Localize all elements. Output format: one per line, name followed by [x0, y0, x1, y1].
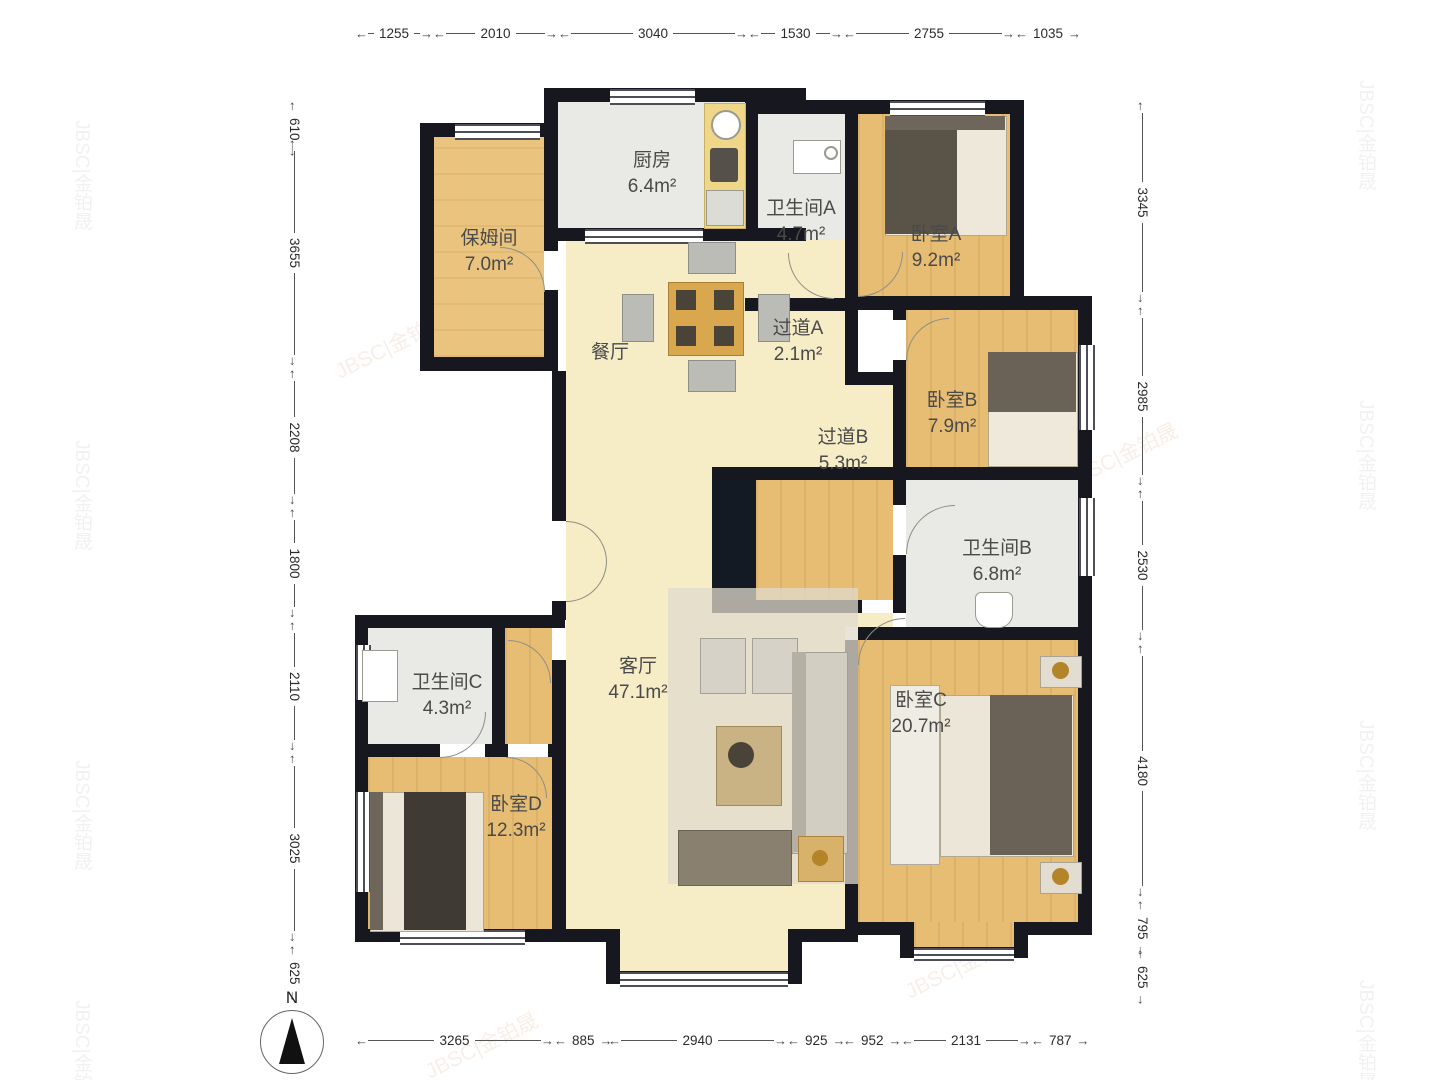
armchair — [700, 638, 746, 694]
dim-top-5: ←1035→ — [1015, 24, 1080, 42]
compass-north-label: N — [255, 988, 329, 1008]
room-label-bathB: 卫生间B6.8m² — [962, 536, 1032, 587]
wall — [420, 357, 556, 371]
dim-bottom-1: ←885→ — [554, 1031, 608, 1049]
bedD-blanket — [404, 792, 466, 930]
wall — [893, 555, 906, 613]
place-setting-icon — [714, 290, 734, 310]
dim-left-0: ←610→ — [286, 100, 304, 138]
window — [1079, 345, 1095, 430]
room-label-kitchen: 厨房6.4m² — [628, 148, 677, 199]
window — [400, 930, 525, 945]
dim-left-3: ←1800→ — [286, 507, 304, 620]
dim-right-0: ←3345→ — [1134, 100, 1152, 305]
wall — [355, 615, 565, 628]
dim-right-3: ←4180→ — [1134, 643, 1152, 899]
wall — [492, 628, 505, 744]
window — [1079, 498, 1095, 576]
bedA-headboard — [885, 116, 1005, 130]
room-label-living: 客厅47.1m² — [608, 654, 667, 705]
kitchen-sink-icon — [711, 110, 741, 140]
window — [620, 972, 788, 987]
dim-bottom-4: ←952→ — [843, 1031, 901, 1049]
shaft — [712, 480, 756, 600]
dim-bottom-5: ←2131→ — [901, 1031, 1031, 1049]
wall — [552, 371, 566, 521]
room-label-bathA: 卫生间A4.7m² — [766, 196, 836, 247]
wall — [552, 660, 566, 942]
toilet-icon — [975, 592, 1013, 628]
wall — [845, 296, 1024, 310]
watermark: JBSC|金铂晟 — [68, 760, 95, 871]
dim-right-4: ←795→ — [1134, 899, 1152, 948]
coffee-table — [716, 726, 782, 806]
sofa-back — [792, 652, 806, 852]
wall — [544, 102, 558, 242]
washer-door-icon — [824, 146, 838, 160]
wall — [712, 467, 1092, 480]
wall — [1010, 100, 1024, 310]
lamp-icon — [1052, 662, 1069, 679]
dim-left-2: ←2208→ — [286, 368, 304, 507]
dim-top-1: ←2010→ — [433, 24, 558, 42]
dim-right-2: ←2530→ — [1134, 488, 1152, 643]
wall — [1014, 922, 1092, 935]
sofa-two-seat — [678, 830, 792, 886]
compass-circle — [260, 1010, 324, 1074]
dim-top-2: ←3040→ — [558, 24, 748, 42]
wall — [485, 744, 508, 757]
wall — [893, 480, 906, 505]
room-label-bedC: 卧室C20.7m² — [891, 688, 950, 739]
place-setting-icon — [676, 290, 696, 310]
living-bay-floor — [620, 935, 788, 973]
lamp-icon — [812, 850, 828, 866]
dim-left-4: ←2110→ — [286, 620, 304, 753]
fridge-icon — [706, 190, 744, 226]
dim-bottom-3: ←925→ — [787, 1031, 843, 1049]
dim-right-5: ←625→ — [1134, 948, 1152, 986]
stove-icon — [710, 148, 738, 182]
window — [356, 792, 371, 892]
dim-bottom-2: ←2940→ — [608, 1031, 787, 1049]
watermark: JBSC|金铂晟 — [68, 120, 95, 231]
bedC-blanket — [990, 695, 1072, 855]
watermark: JBSC|金铂晟 — [1352, 720, 1379, 831]
watermark: JBSC|金铂晟 — [1352, 80, 1379, 191]
dining-chair — [622, 294, 654, 342]
watermark: JBSC|金铂晟 — [1352, 980, 1379, 1080]
place-setting-icon — [714, 326, 734, 346]
window — [455, 124, 540, 140]
dim-bottom-0: ←3265→ — [355, 1031, 554, 1049]
sliding-door — [585, 229, 703, 244]
compass: N — [255, 988, 329, 1074]
wall — [745, 102, 758, 228]
dim-top-0: ←1255→ — [355, 24, 433, 42]
room-label-bedA: 卧室A9.2m² — [911, 222, 962, 273]
watermark: JBSC|金铂晟 — [68, 440, 95, 551]
room-label-bathC: 卫生间C4.3m² — [412, 670, 483, 721]
bedB-blanket — [988, 352, 1076, 412]
room-label-bedB: 卧室B7.9m² — [927, 388, 978, 439]
window — [610, 89, 695, 105]
dim-right-1: ←2985→ — [1134, 305, 1152, 488]
room-label-dining: 餐厅 — [591, 340, 629, 366]
floor-plan: JBSC|金铂晟 JBSC|金铂晟 JBSC|金铂晟 JBSC|金铂晟 JBSC… — [0, 0, 1440, 1080]
room-label-bedD: 卧室D12.3m² — [486, 792, 545, 843]
dim-left-6: ←625→ — [286, 944, 304, 983]
watermark: JBSC|金铂晟 — [1352, 400, 1379, 511]
dim-top-4: ←2755→ — [843, 24, 1015, 42]
wall — [544, 290, 558, 371]
dim-top-3: ←1530→ — [748, 24, 843, 42]
dim-left-1: ←3655→ — [286, 138, 304, 368]
room-label-hallA: 过道A2.1m² — [773, 316, 824, 367]
place-setting-icon — [676, 326, 696, 346]
wall — [355, 744, 440, 757]
sink-icon — [362, 650, 398, 702]
room-label-hallB: 过道B5.3m² — [818, 425, 869, 476]
window — [914, 948, 1014, 961]
room-label-nanny: 保姆间7.0m² — [460, 226, 517, 277]
wall — [845, 372, 906, 385]
wall — [845, 922, 914, 935]
bedA-blanket — [885, 130, 957, 234]
wall — [845, 114, 858, 372]
bedC-bay-floor — [914, 922, 1014, 947]
window — [890, 101, 985, 117]
table-tray-icon — [728, 742, 754, 768]
wall — [420, 123, 434, 371]
lamp-icon — [1052, 868, 1069, 885]
dining-chair — [688, 242, 736, 274]
watermark: JBSC|金铂晟 — [68, 1000, 95, 1080]
wall — [548, 744, 566, 757]
dining-chair — [688, 360, 736, 392]
dim-bottom-6: ←787→ — [1031, 1031, 1079, 1049]
closet-floor — [756, 480, 893, 600]
bedD-headboard — [370, 792, 383, 930]
compass-needle-icon — [279, 1018, 305, 1064]
wall — [893, 310, 906, 320]
dim-left-5: ←3025→ — [286, 753, 304, 944]
